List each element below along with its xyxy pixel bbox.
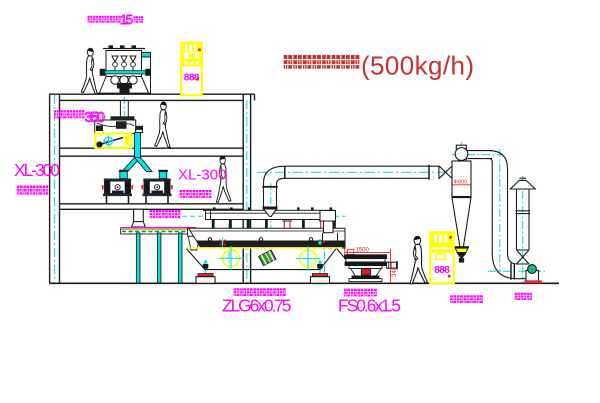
svg-text:350: 350 — [85, 109, 106, 126]
svg-text:Φ800: Φ800 — [454, 180, 468, 186]
svg-text:FS0.6x1.5: FS0.6x1.5 — [338, 296, 401, 316]
svg-text:XL-300: XL-300 — [178, 166, 227, 183]
svg-text:888: 888 — [434, 265, 450, 276]
svg-text:1.5: 1.5 — [120, 12, 133, 27]
svg-text:1500: 1500 — [356, 248, 370, 254]
svg-text:XL-300: XL-300 — [14, 160, 60, 180]
svg-text:340: 340 — [392, 266, 398, 277]
svg-text:ZLG6x0.75: ZLG6x0.75 — [222, 296, 292, 316]
svg-text:(500kg/h): (500kg/h) — [361, 51, 474, 81]
